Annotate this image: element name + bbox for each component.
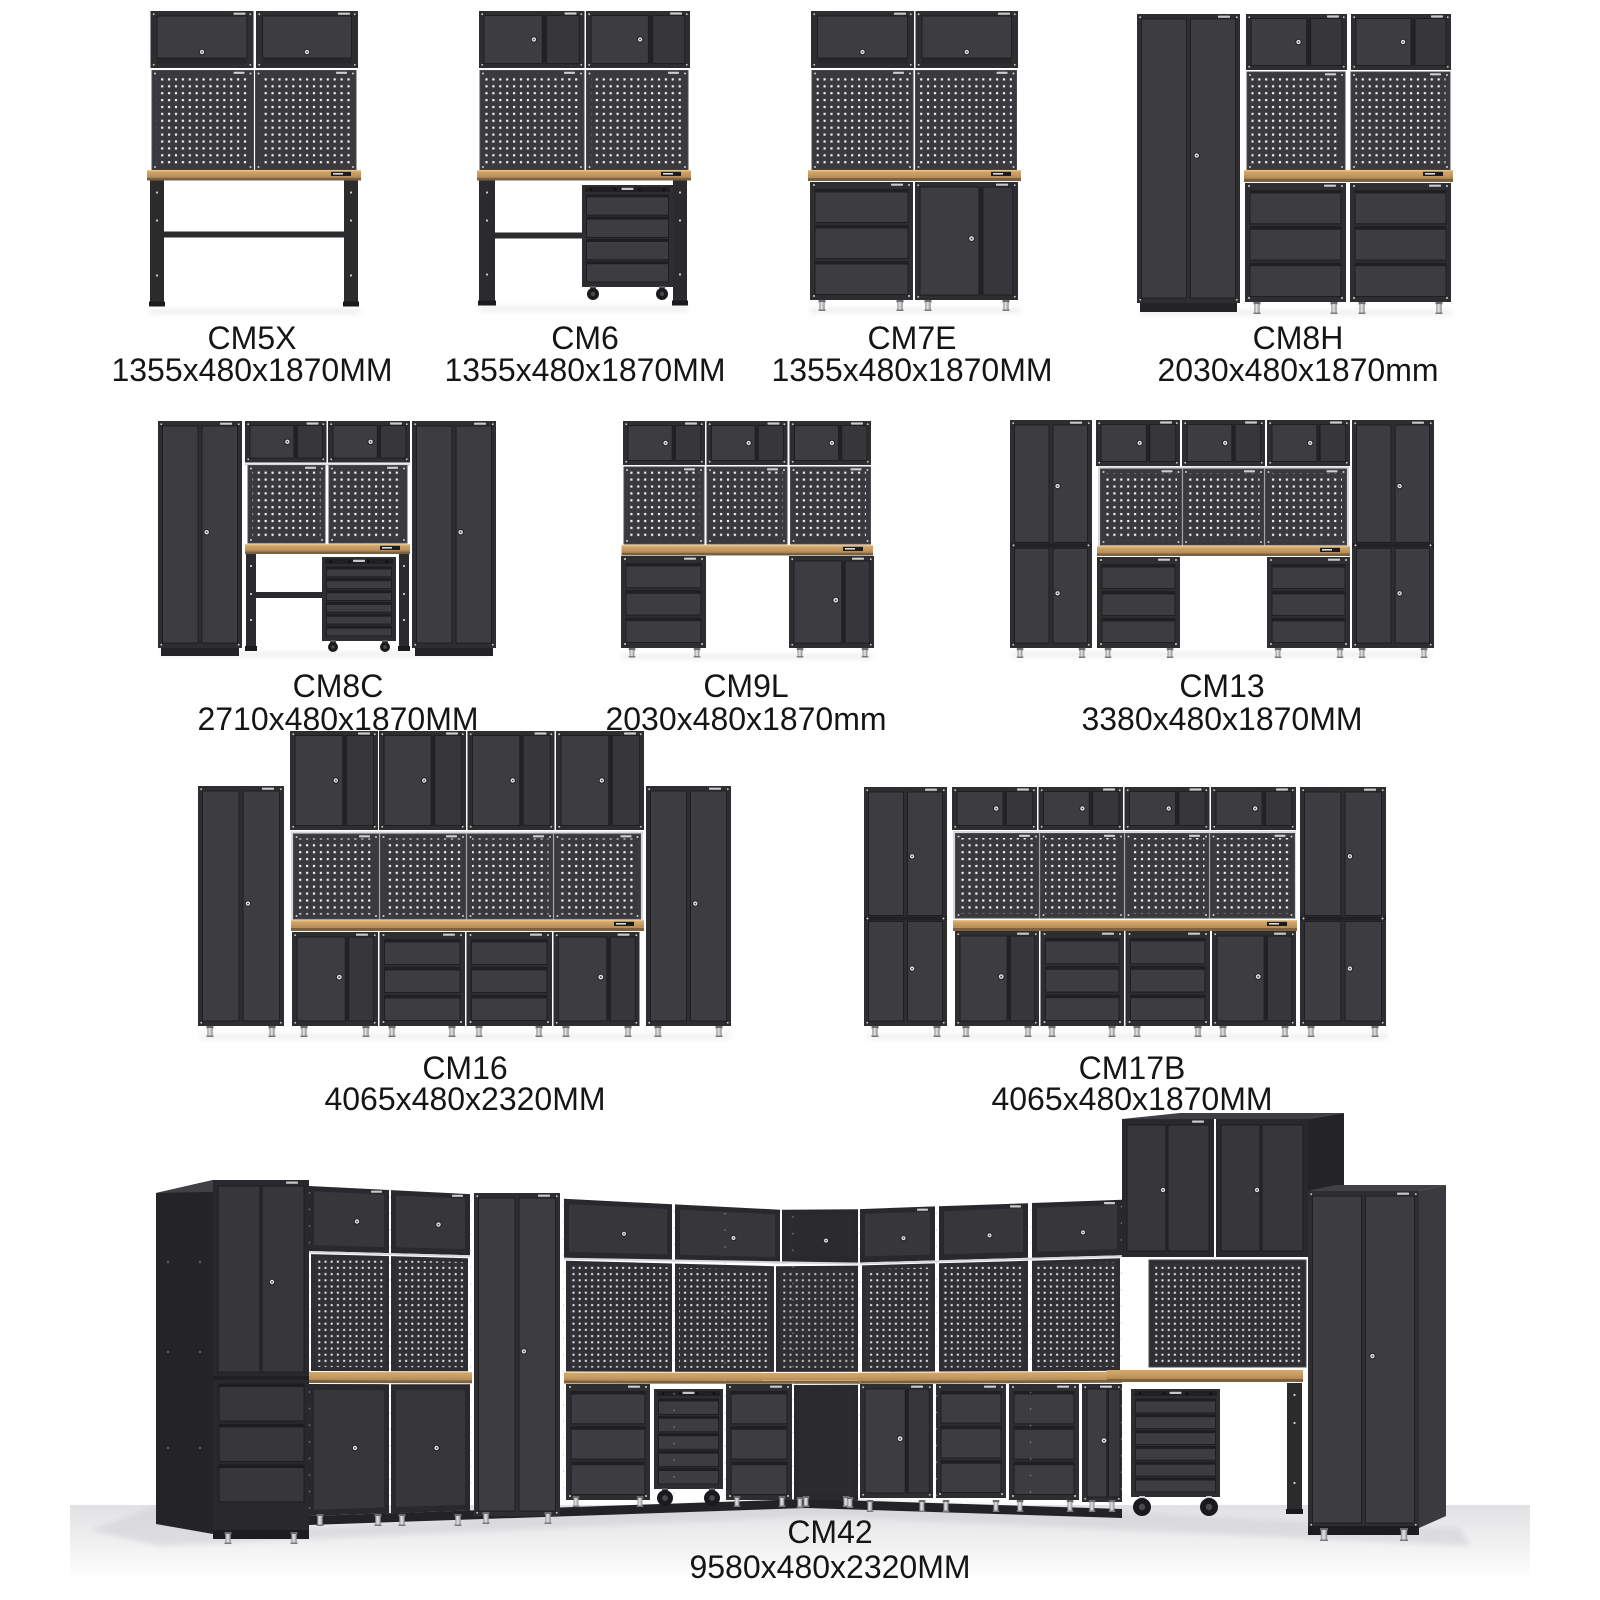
svg-text:9580x480x2320MM: 9580x480x2320MM bbox=[689, 1549, 970, 1585]
svg-text:4065x480x1870MM: 4065x480x1870MM bbox=[991, 1081, 1272, 1117]
svg-text:CM8C: CM8C bbox=[293, 668, 384, 704]
svg-text:CM42: CM42 bbox=[787, 1514, 872, 1550]
svg-text:CM9L: CM9L bbox=[703, 668, 788, 704]
svg-text:2030x480x1870mm: 2030x480x1870mm bbox=[605, 701, 886, 737]
svg-text:1355x480x1870MM: 1355x480x1870MM bbox=[444, 352, 725, 388]
svg-text:CM8H: CM8H bbox=[1253, 320, 1344, 356]
svg-text:CM5X: CM5X bbox=[208, 320, 297, 356]
svg-text:CM13: CM13 bbox=[1179, 668, 1264, 704]
svg-text:CM7E: CM7E bbox=[868, 320, 957, 356]
svg-text:3380x480x1870MM: 3380x480x1870MM bbox=[1081, 701, 1362, 737]
svg-text:1355x480x1870MM: 1355x480x1870MM bbox=[111, 352, 392, 388]
svg-text:4065x480x2320MM: 4065x480x2320MM bbox=[324, 1081, 605, 1117]
svg-text:CM6: CM6 bbox=[551, 320, 619, 356]
svg-text:1355x480x1870MM: 1355x480x1870MM bbox=[771, 352, 1052, 388]
svg-text:2030x480x1870mm: 2030x480x1870mm bbox=[1157, 352, 1438, 388]
